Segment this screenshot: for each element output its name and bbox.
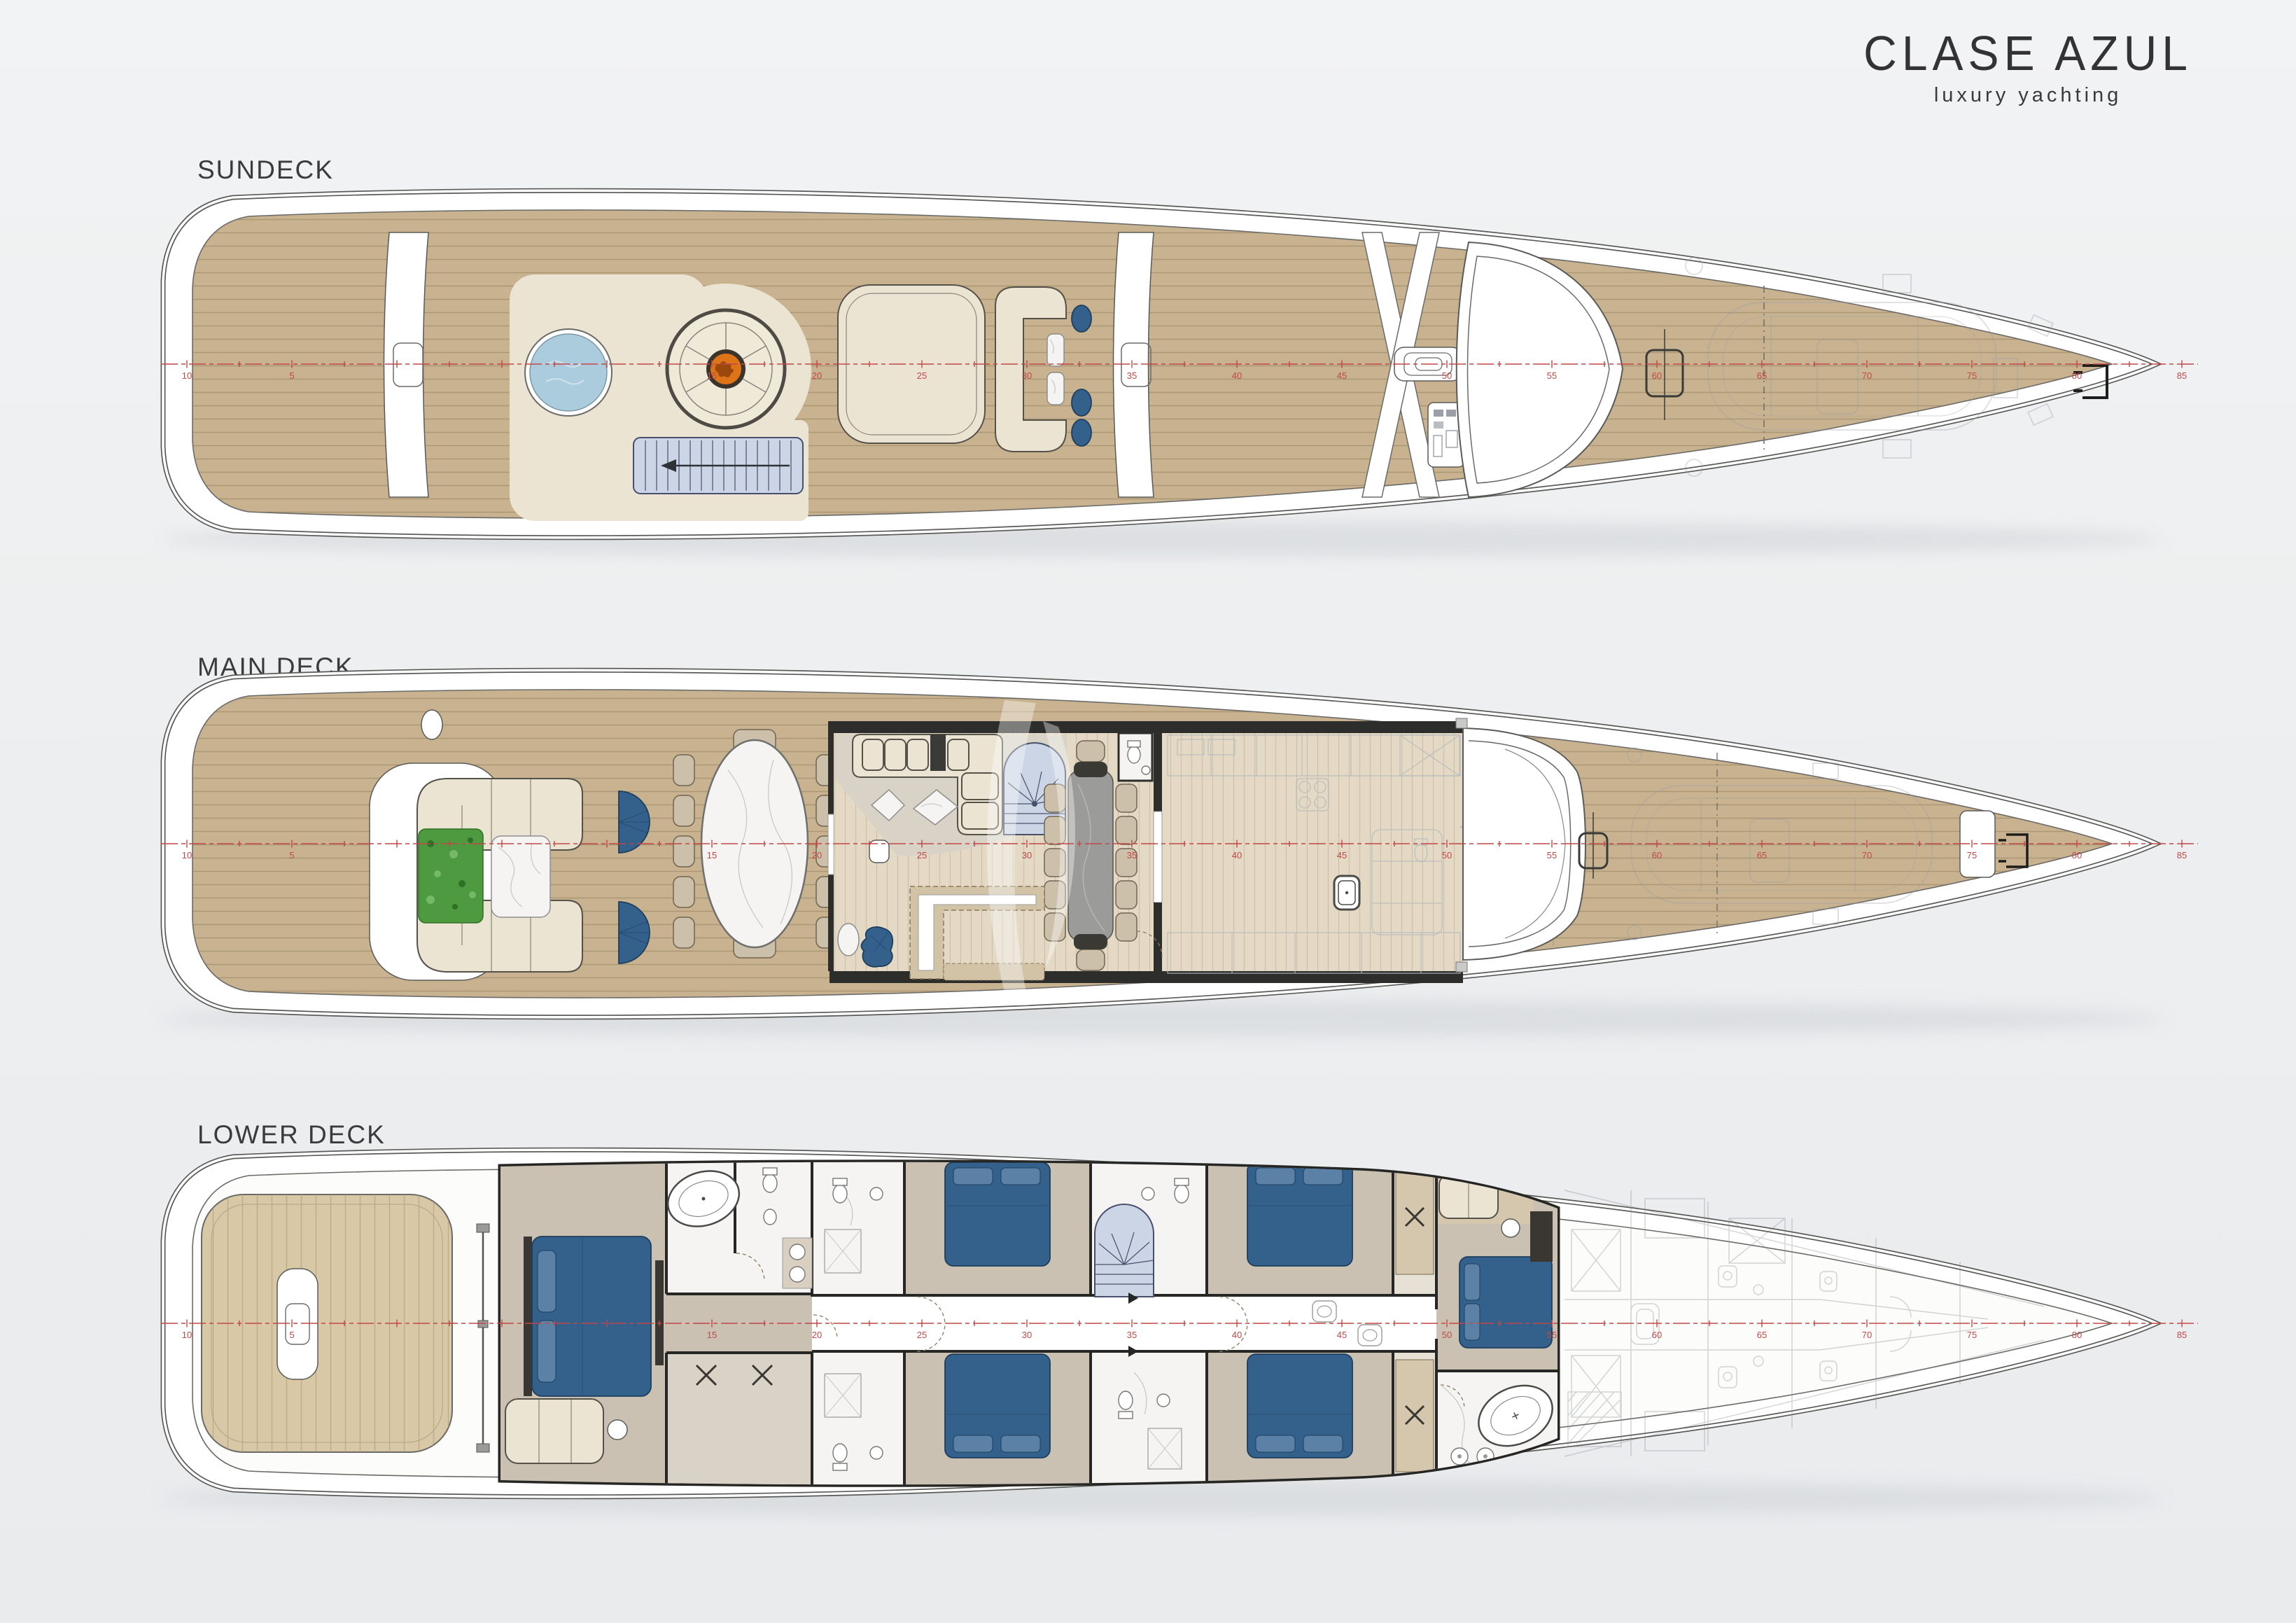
planter [419,829,483,923]
station-number: 75 [1967,850,1977,861]
station-number: 65 [1757,370,1767,381]
station-number: 75 [1967,1330,1977,1340]
station-number: 5 [289,850,294,861]
station-number: 50 [1442,1330,1452,1340]
sundeck-plan: 105152025303540455055606570758085 [150,190,2198,557]
blue-pouf [1072,305,1091,332]
stairs-down [633,438,803,494]
station-number: 20 [812,370,822,381]
station-number: 5 [289,1330,294,1340]
vip-bed [1459,1257,1552,1348]
station-number: 20 [812,1330,822,1340]
deck-arch [1114,232,1154,497]
side-table [838,924,859,956]
station-number: 55 [1547,370,1557,381]
corridor [812,1297,1436,1351]
salon-door [828,814,834,875]
master-closet [666,1353,812,1486]
station-number: 30 [1022,370,1032,381]
station-number: 45 [1337,850,1347,861]
station-number: 85 [2177,370,2187,381]
station-number: 80 [2072,850,2082,861]
station-number: 85 [2177,1330,2187,1340]
station-number: 40 [1232,1330,1242,1340]
station-number: 25 [917,850,927,861]
side-table [1047,372,1064,405]
station-number: 25 [917,1330,927,1340]
lower-spiral-staircase [1095,1204,1154,1297]
stern-arch [384,232,429,497]
station-number: 10 [182,850,192,861]
sofa-side-table [930,734,946,771]
blue-pouf [1072,419,1091,446]
jacuzzi [525,329,612,416]
sun-lounge-area [510,274,811,521]
station-number: 65 [1757,850,1767,861]
station-number: 60 [1652,850,1662,861]
station-number: 10 [182,1330,192,1340]
station-number: 15 [707,370,717,381]
station-number: 15 [707,850,717,861]
station-number: 55 [1547,1330,1557,1340]
blue-swivel-chair [862,927,893,967]
station-number: 70 [1862,1330,1872,1340]
station-number: 40 [1232,370,1242,381]
station-number: 10 [182,370,192,381]
station-number: 50 [1442,850,1452,861]
master-bed [524,1237,651,1396]
station-number: 40 [1232,850,1242,861]
station-number: 15 [707,1330,717,1340]
station-number: 60 [1652,1330,1662,1340]
station-number: 80 [2072,1330,2082,1340]
station-number: 65 [1757,1330,1767,1340]
station-number: 35 [1127,850,1137,861]
side-table [1047,334,1064,366]
station-number: 45 [1337,1330,1347,1340]
station-number: 80 [2072,370,2082,381]
station-number: 85 [2177,850,2187,861]
deck-hatch [421,710,442,739]
yacht-deck-plans-page: CLASE AZUL luxury yachting SUNDECK MAIN … [0,0,2296,1623]
station-number: 20 [812,850,822,861]
station-number: 35 [1127,1330,1137,1340]
station-number: 5 [289,370,294,381]
blue-pouf [1072,389,1091,416]
station-number: 30 [1022,1330,1032,1340]
lower-deck-plan: 105152025303540455055606570758085 [161,1150,2198,1517]
station-number: 50 [1442,370,1452,381]
station-number: 30 [1022,850,1032,861]
day-head [1119,733,1152,781]
station-number: 75 [1967,370,1977,381]
dining-table [1068,770,1113,941]
fire-pit-table [667,310,785,428]
station-number: 55 [1547,850,1557,861]
main-deck-plan: 105152025303540455055606570758085 [150,670,2198,1037]
station-number: 60 [1652,370,1662,381]
station-number: 35 [1127,370,1137,381]
station-number: 25 [917,370,927,381]
station-number: 45 [1337,370,1347,381]
station-number: 70 [1862,850,1872,861]
deck-plan-drawing: 105152025303540455055606570758085 [0,0,2296,1623]
station-number: 70 [1862,370,1872,381]
